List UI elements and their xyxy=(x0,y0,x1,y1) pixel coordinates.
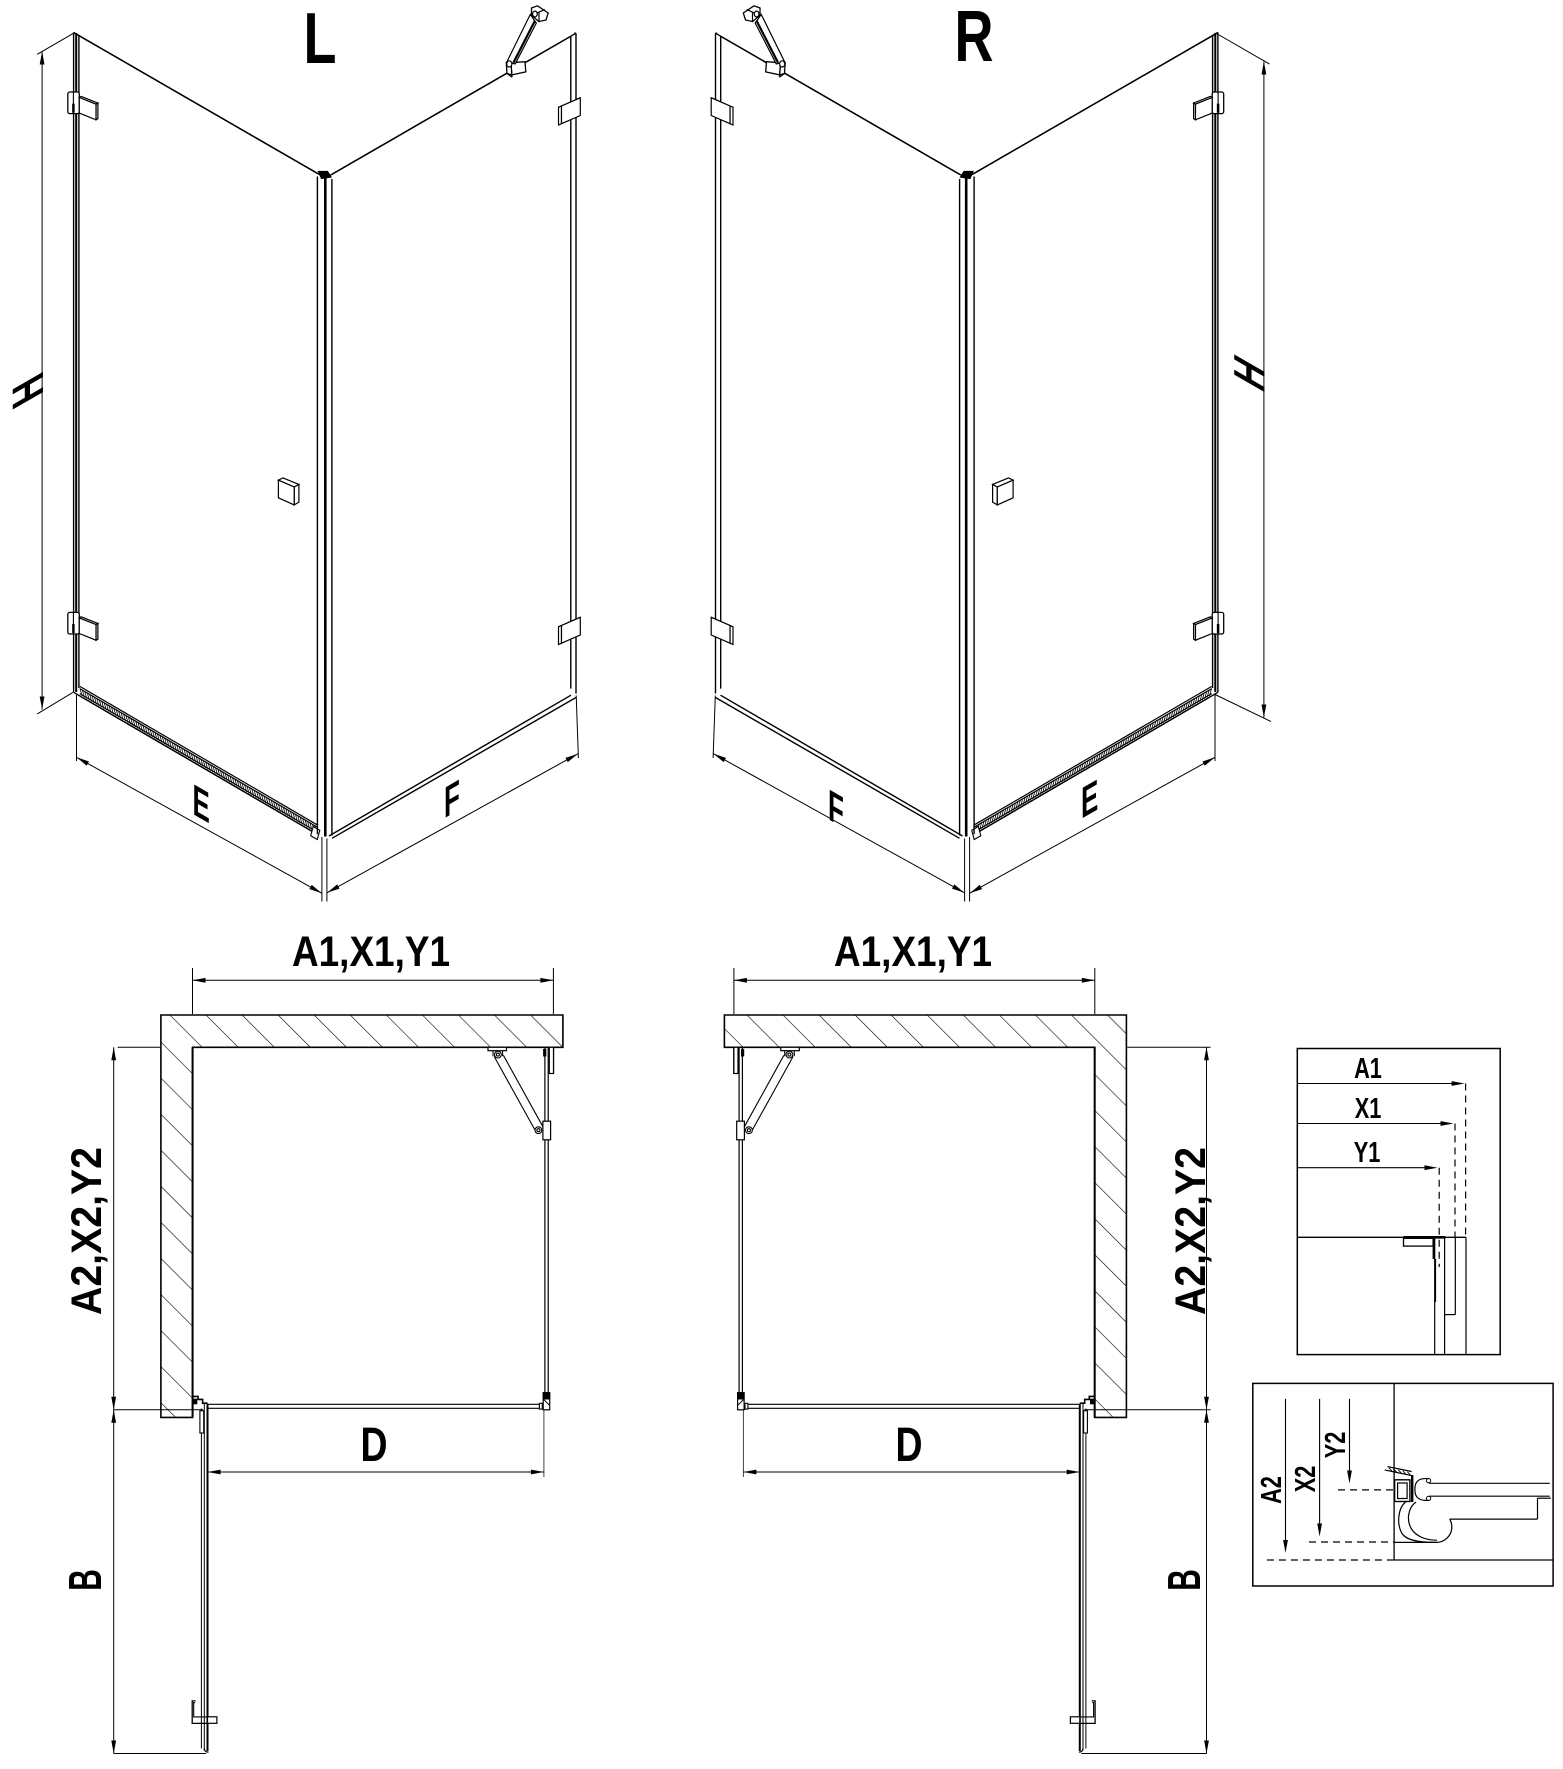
svg-text:B: B xyxy=(1160,1569,1211,1591)
svg-text:Y2: Y2 xyxy=(1320,1432,1352,1459)
svg-text:A2,X2,Y2: A2,X2,Y2 xyxy=(63,1147,111,1315)
svg-text:A1,X1,Y1: A1,X1,Y1 xyxy=(292,928,450,976)
svg-text:E: E xyxy=(1081,769,1098,828)
svg-text:A1: A1 xyxy=(1354,1053,1382,1085)
svg-text:E: E xyxy=(193,774,210,833)
svg-text:Y1: Y1 xyxy=(1354,1137,1381,1169)
svg-text:D: D xyxy=(360,1419,387,1473)
svg-text:F: F xyxy=(828,779,844,837)
svg-text:L: L xyxy=(304,0,337,79)
svg-text:A2,X2,Y2: A2,X2,Y2 xyxy=(1167,1147,1215,1315)
svg-text:D: D xyxy=(895,1419,922,1473)
svg-text:B: B xyxy=(61,1569,112,1591)
svg-text:X1: X1 xyxy=(1355,1093,1382,1125)
svg-text:A2: A2 xyxy=(1256,1476,1288,1504)
svg-text:F: F xyxy=(444,770,460,828)
svg-text:A1,X1,Y1: A1,X1,Y1 xyxy=(834,928,992,976)
svg-text:R: R xyxy=(955,0,994,77)
svg-text:X2: X2 xyxy=(1290,1466,1322,1493)
